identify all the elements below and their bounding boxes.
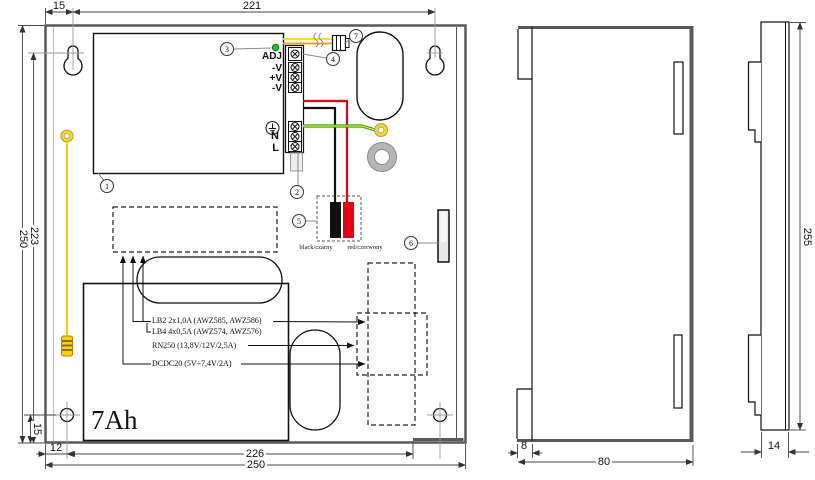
door-hook-top [749, 62, 762, 142]
dim-hole-offset-v: 15 [31, 421, 43, 437]
side-slot-top [674, 62, 683, 134]
dim-mount-offset-top: 15 [53, 0, 65, 12]
dim-height-outer: 250 [17, 228, 29, 250]
callout-7-connector: 7 [349, 29, 363, 43]
callout-6-tamper: 6 [404, 236, 418, 250]
callout-5-battery-leads: 5 [292, 214, 306, 228]
terminal-block-base [291, 153, 303, 171]
front-view [28, 8, 466, 459]
battery-lead-black-label: black/czarny [288, 244, 344, 251]
callout-4-adj-terminal: 4 [326, 52, 340, 66]
adj-led-icon [272, 44, 278, 50]
battery-lead-red-label: red/czerwony [337, 244, 393, 251]
side-lip-top [518, 29, 532, 79]
side-lip-bottom [517, 389, 532, 439]
technical-drawing-canvas: 15 221 223 250 15 12 226 250 8 80 255 14… [0, 0, 815, 480]
door-panel [761, 22, 789, 430]
callout-1-pcb: 1 [100, 179, 114, 193]
terminal-block [286, 46, 304, 172]
terminal-label-neutral: N [245, 130, 279, 142]
callout-3-led: 3 [220, 42, 234, 56]
battery-lead-red [343, 202, 354, 238]
terminal-label-line: L [245, 142, 279, 154]
callout-2-terminal-block: 2 [290, 185, 304, 199]
note-lb2: LB2 2x1,0A (AWZ585, AWZ586) [152, 316, 262, 325]
dim-mount-span: 221 [243, 0, 261, 12]
faston-connector [62, 336, 73, 356]
dim-side-lip: 8 [521, 440, 527, 452]
note-lb4: LB4 4x0,5A (AWZ574, AWZ576) [152, 327, 262, 336]
side-view [517, 26, 693, 442]
dim-width-outer: 250 [245, 459, 267, 471]
door-hook-bottom [749, 335, 762, 415]
dim-side-depth: 80 [596, 456, 612, 468]
side-slot-bottom [674, 335, 682, 408]
note-dcdc20: DCDC20 (5V÷7,4V/2A) [152, 359, 232, 368]
terminal-label-vminus2: -V [248, 83, 282, 94]
dim-height-inner: 223 [28, 225, 40, 247]
battery-lead-black [330, 202, 341, 238]
dim-door-height: 255 [801, 226, 813, 248]
door-view [749, 22, 790, 430]
dim-door-thickness: 14 [768, 440, 780, 452]
dim-hole-offset-h: 12 [50, 442, 62, 454]
oval-cutout-top [357, 32, 403, 120]
terminal-label-adj: ADJ [248, 51, 282, 62]
tamper-switch [438, 210, 449, 262]
note-rn250: RN250 (13,8V/12V/2,5A) [152, 341, 236, 350]
battery-capacity-label: 7Ah [91, 405, 138, 436]
earth-stud-ring [375, 124, 388, 137]
